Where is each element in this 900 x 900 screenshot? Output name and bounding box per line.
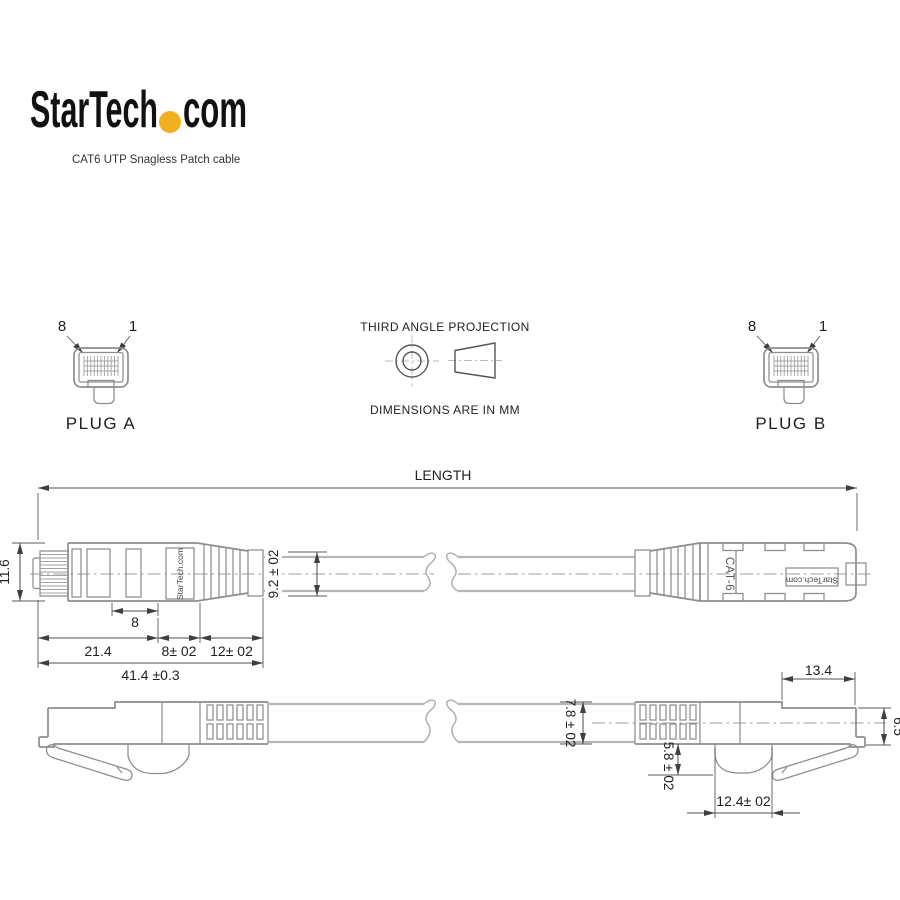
cable-side bbox=[263, 553, 635, 591]
inner-segment-label: 8 bbox=[131, 614, 139, 630]
connector-a-profile bbox=[39, 702, 268, 780]
boot-slots bbox=[207, 705, 263, 739]
leader-line bbox=[807, 336, 820, 353]
logo-text-startech: StarTech bbox=[30, 81, 158, 139]
technical-drawing: StarTech com CAT6 UTP Snagless Patch cab… bbox=[0, 0, 900, 900]
plug-b-pin1-label: 1 bbox=[819, 318, 827, 335]
length-label: LENGTH bbox=[415, 467, 472, 483]
bottom-view: 7.8 ± 02 bbox=[39, 662, 900, 818]
plug-a-front-icon bbox=[74, 348, 128, 404]
boot-segment2-label: 12± 02 bbox=[210, 643, 253, 659]
plug-a-pin1-label: 1 bbox=[129, 318, 137, 335]
latch-guard bbox=[715, 744, 772, 773]
plug-a-pin8-label: 8 bbox=[58, 318, 66, 335]
plug-a-label: PLUG A bbox=[66, 414, 136, 433]
logo-dot-icon bbox=[159, 111, 181, 133]
cable-od-bottom-label: 7.8 ± 02 bbox=[563, 699, 578, 748]
logo-text-com: com bbox=[183, 81, 247, 139]
units-note: DIMENSIONS ARE IN MM bbox=[370, 403, 520, 417]
plug-height-dimension: 11.6 bbox=[0, 543, 45, 601]
mold-notches bbox=[723, 543, 824, 601]
connector-b-brand-marking: StarTech.com bbox=[786, 576, 838, 586]
plug-b-front-icon bbox=[764, 348, 818, 404]
guard-width-label: 12.4± 02 bbox=[716, 793, 771, 809]
leader-line bbox=[117, 336, 130, 353]
plug-height-label: 11.6 bbox=[0, 559, 12, 584]
cable-od-bottom-dimension: 7.8 ± 02 bbox=[560, 699, 592, 748]
brand-logo: StarTech com CAT6 UTP Snagless Patch cab… bbox=[30, 81, 247, 166]
connector-b-cat6-marking: CAT-6 bbox=[723, 557, 735, 591]
guard-depth-label: 5.8 ± 02 bbox=[661, 742, 676, 791]
guard-depth-dimension: 5.8 ± 02 bbox=[648, 742, 713, 791]
boot-segment1-label: 8± 02 bbox=[162, 643, 197, 659]
latch-lever bbox=[46, 745, 132, 781]
plug-a-view: 8 1 PLUG A bbox=[58, 318, 137, 433]
plug-b-pin8-label: 8 bbox=[748, 318, 756, 335]
projection-title: THIRD ANGLE PROJECTION bbox=[360, 320, 530, 334]
cable-od-label: 9.2 ± 02 bbox=[266, 550, 281, 599]
overall-length-label: 41.4 ±0.3 bbox=[121, 667, 179, 683]
plug-body-length-label: 21.4 bbox=[84, 643, 111, 659]
cable-bottom bbox=[268, 700, 635, 742]
length-dimension: LENGTH bbox=[38, 467, 857, 540]
third-angle-symbol-icon bbox=[385, 335, 502, 387]
latch-lever bbox=[772, 745, 858, 781]
plug-b-view: 8 1 PLUG B bbox=[748, 318, 827, 433]
tip-height-label: 6.5 bbox=[891, 717, 900, 736]
connector-a-marking: StarTech.com bbox=[175, 548, 185, 600]
connector-a-side: StarTech.com bbox=[33, 543, 263, 601]
boot-ribs bbox=[204, 544, 240, 600]
latch-guard bbox=[128, 744, 189, 774]
projection-note: THIRD ANGLE PROJECTION DIMENSIONS ARE IN… bbox=[360, 320, 530, 417]
guard-width-dimension: 12.4± 02 bbox=[687, 748, 800, 818]
boot-ribs bbox=[657, 544, 693, 600]
side-view: LENGTH StarTech.com bbox=[0, 467, 872, 683]
inner-segment-dimension: 8 bbox=[112, 603, 158, 630]
product-subtitle: CAT6 UTP Snagless Patch cable bbox=[72, 154, 240, 166]
tip-length-label: 13.4 bbox=[805, 662, 832, 678]
drawing-page: StarTech com CAT6 UTP Snagless Patch cab… bbox=[0, 0, 900, 900]
connector-b-side: CAT-6 StarTech.com bbox=[635, 543, 866, 601]
boot-slots bbox=[640, 705, 696, 739]
tip-length-dimension: 13.4 bbox=[782, 662, 855, 705]
plug-b-label: PLUG B bbox=[755, 414, 826, 433]
